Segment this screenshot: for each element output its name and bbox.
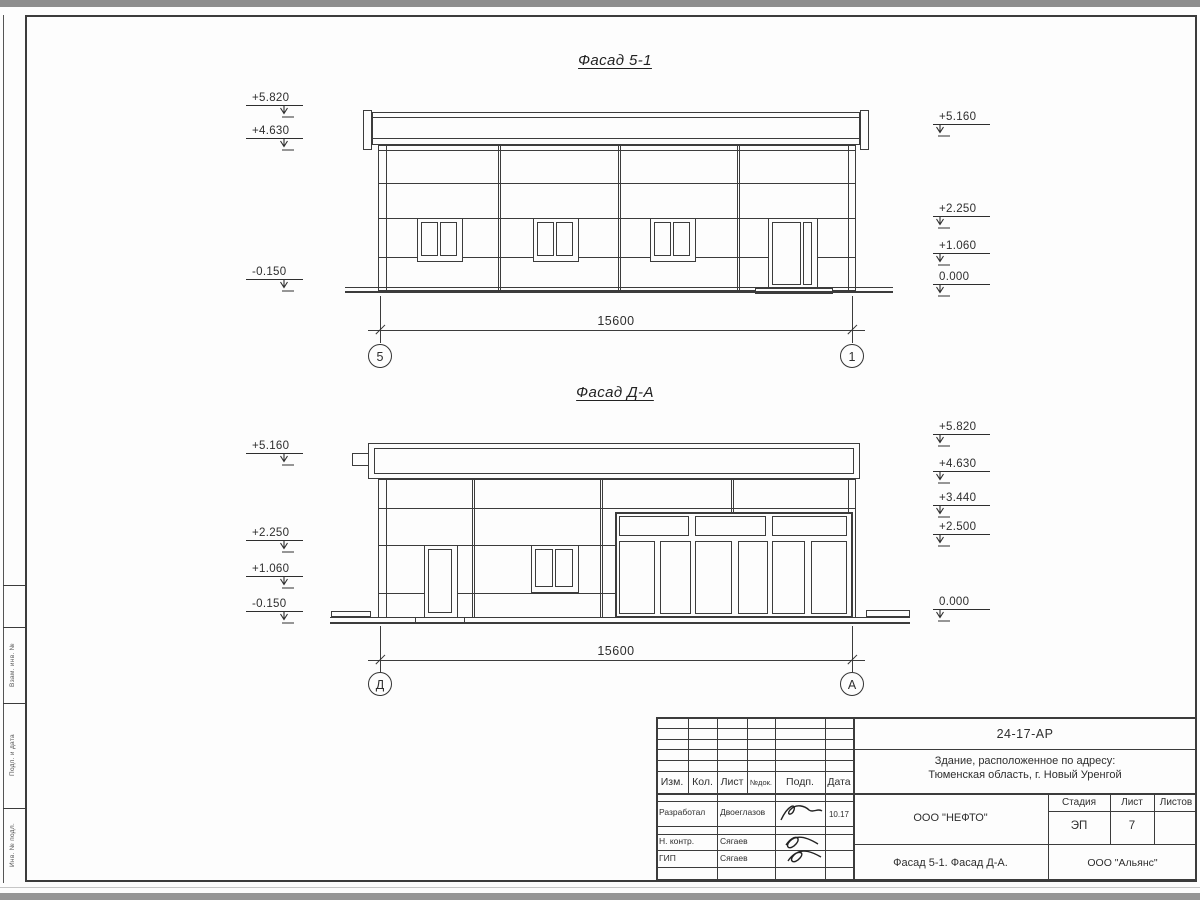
sheet-title: Фасад 5-1. Фасад Д-А. bbox=[853, 857, 1048, 870]
dimension-value: 15600 bbox=[556, 644, 676, 658]
siding-line bbox=[379, 545, 616, 546]
axis-circle: Д bbox=[368, 672, 392, 696]
elevation-arrow-icon bbox=[934, 609, 952, 623]
col-header-izm: Изм. bbox=[656, 776, 688, 788]
grid-line bbox=[656, 760, 853, 761]
sheet-label: Лист bbox=[1110, 797, 1154, 809]
extension-line bbox=[380, 626, 381, 672]
project-address-line1: Здание, расположенное по адресу: bbox=[853, 755, 1197, 768]
organization-name: ООО "НЕФТО" bbox=[853, 812, 1048, 825]
grid-line bbox=[1048, 811, 1197, 812]
door bbox=[424, 545, 458, 618]
elevation-mark: +5.160 bbox=[246, 440, 306, 454]
signature-role: ГИП bbox=[659, 854, 716, 864]
elevation-value: 0.000 bbox=[933, 596, 990, 610]
storefront-panel bbox=[619, 541, 655, 614]
elevation-value: -0.150 bbox=[246, 598, 303, 612]
storefront bbox=[615, 512, 853, 618]
elevation-arrow-icon bbox=[278, 576, 296, 590]
grid-line bbox=[656, 749, 1197, 750]
elevation-mark: +2.250 bbox=[246, 527, 306, 541]
grid-line bbox=[656, 826, 853, 827]
axis-circle: А bbox=[840, 672, 864, 696]
storefront-transom bbox=[619, 516, 689, 536]
signature-date: 10.17 bbox=[825, 810, 853, 819]
grid-line bbox=[853, 844, 1197, 845]
signature-role: Н. контр. bbox=[659, 837, 716, 847]
elevation-value: +5.820 bbox=[933, 421, 990, 435]
grid-line bbox=[775, 717, 776, 881]
elevation-arrow-icon bbox=[278, 453, 296, 467]
grid-line bbox=[656, 793, 1197, 795]
grid-line bbox=[656, 728, 853, 729]
elevation-mark: +3.440 bbox=[933, 492, 993, 506]
elevation-mark: 0.000 bbox=[933, 596, 993, 610]
elevation-value: +1.060 bbox=[246, 563, 303, 577]
stage-value: ЭП bbox=[1048, 820, 1110, 833]
elevation-arrow-icon bbox=[934, 434, 952, 448]
band-mullion bbox=[731, 479, 734, 512]
signature-name: Двоеглазов bbox=[720, 808, 774, 818]
signature-name: Сягаев bbox=[720, 854, 774, 864]
grid-line bbox=[656, 771, 853, 772]
ground-slab bbox=[866, 610, 910, 617]
door-leaf bbox=[428, 549, 452, 613]
storefront-panel bbox=[695, 541, 732, 614]
facade-title: Фасад Д-А bbox=[535, 384, 695, 401]
elevation-value: +4.630 bbox=[933, 458, 990, 472]
signature-role: Разработал bbox=[659, 808, 716, 818]
contractor-name: ООО "Альянс" bbox=[1048, 857, 1197, 869]
col-header-data: Дата bbox=[825, 776, 853, 788]
window-sash bbox=[555, 549, 573, 587]
elevation-value: +5.160 bbox=[246, 440, 303, 454]
grid-line bbox=[656, 739, 853, 740]
window bbox=[531, 545, 579, 593]
stage-label: Стадия bbox=[1048, 797, 1110, 809]
elevation-arrow-icon bbox=[278, 540, 296, 554]
extension-line bbox=[852, 626, 853, 672]
elevation-arrow-icon bbox=[934, 534, 952, 548]
storefront-panel bbox=[660, 541, 691, 614]
storefront-transom bbox=[695, 516, 766, 536]
document-number: 24-17-АР bbox=[853, 727, 1197, 741]
drawing-sheet: Взам. инв. № Подп. и дата Инв. № подл. Ф… bbox=[0, 0, 1200, 900]
signature-icon bbox=[778, 833, 824, 869]
fascia-inner-panel bbox=[374, 448, 854, 474]
col-header-podp: Подп. bbox=[775, 776, 825, 788]
plinth-line bbox=[330, 617, 910, 618]
signature-icon bbox=[778, 801, 824, 825]
elevation-mark: +1.060 bbox=[246, 563, 306, 577]
siding-line bbox=[379, 508, 855, 509]
corner-pilaster-line bbox=[386, 480, 387, 617]
col-header-list: Лист bbox=[717, 776, 747, 788]
col-header-kol: Кол. bbox=[688, 776, 717, 788]
wall-mullion bbox=[472, 479, 475, 618]
elevation-value: +2.500 bbox=[933, 521, 990, 535]
storefront-panel bbox=[811, 541, 847, 614]
dimension-line bbox=[368, 660, 865, 661]
col-header-ndok: №док. bbox=[747, 779, 775, 788]
elevation-arrow-icon bbox=[934, 471, 952, 485]
sheets-label: Листов bbox=[1154, 797, 1198, 809]
storefront-transom bbox=[772, 516, 847, 536]
elevation-arrow-icon bbox=[934, 505, 952, 519]
grid-line bbox=[825, 717, 826, 881]
elevation-mark: +5.820 bbox=[933, 421, 993, 435]
elevation-value: +2.250 bbox=[246, 527, 303, 541]
fascia-bracket bbox=[352, 453, 369, 466]
elevation-mark: +2.500 bbox=[933, 521, 993, 535]
siding-line bbox=[379, 593, 616, 594]
elevation-value: +3.440 bbox=[933, 492, 990, 506]
grid-line bbox=[717, 717, 718, 881]
storefront-panel bbox=[738, 541, 768, 614]
elevation-arrow-icon bbox=[278, 611, 296, 625]
signature-name: Сягаев bbox=[720, 837, 774, 847]
project-address-line2: Тюменская область, г. Новый Уренгой bbox=[853, 769, 1197, 782]
elevation-mark: +4.630 bbox=[933, 458, 993, 472]
window-sash bbox=[535, 549, 553, 587]
sheet-number-value: 7 bbox=[1110, 820, 1154, 833]
elevation-mark: -0.150 bbox=[246, 598, 306, 612]
storefront-panel bbox=[772, 541, 805, 614]
wall-mullion bbox=[600, 479, 603, 618]
ground-line bbox=[330, 622, 910, 624]
